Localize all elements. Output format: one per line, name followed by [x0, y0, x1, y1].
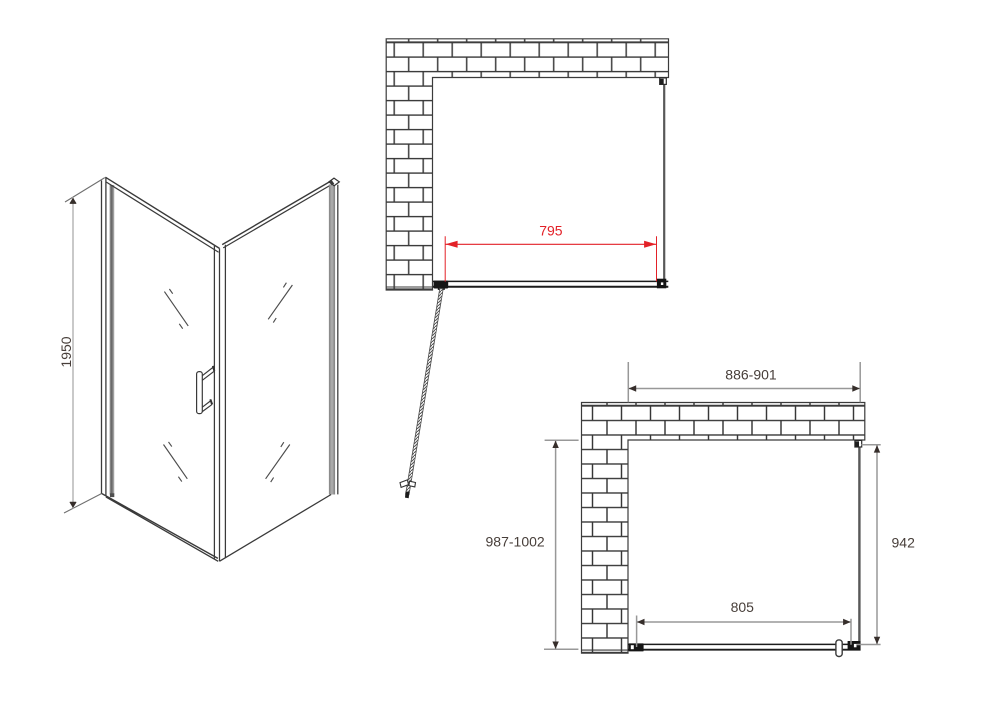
- svg-text:1950: 1950: [58, 336, 74, 367]
- svg-text:886-901: 886-901: [725, 367, 777, 383]
- svg-text:987-1002: 987-1002: [486, 533, 545, 549]
- svg-text:942: 942: [892, 534, 916, 550]
- svg-text:795: 795: [539, 222, 563, 238]
- svg-text:805: 805: [731, 599, 755, 615]
